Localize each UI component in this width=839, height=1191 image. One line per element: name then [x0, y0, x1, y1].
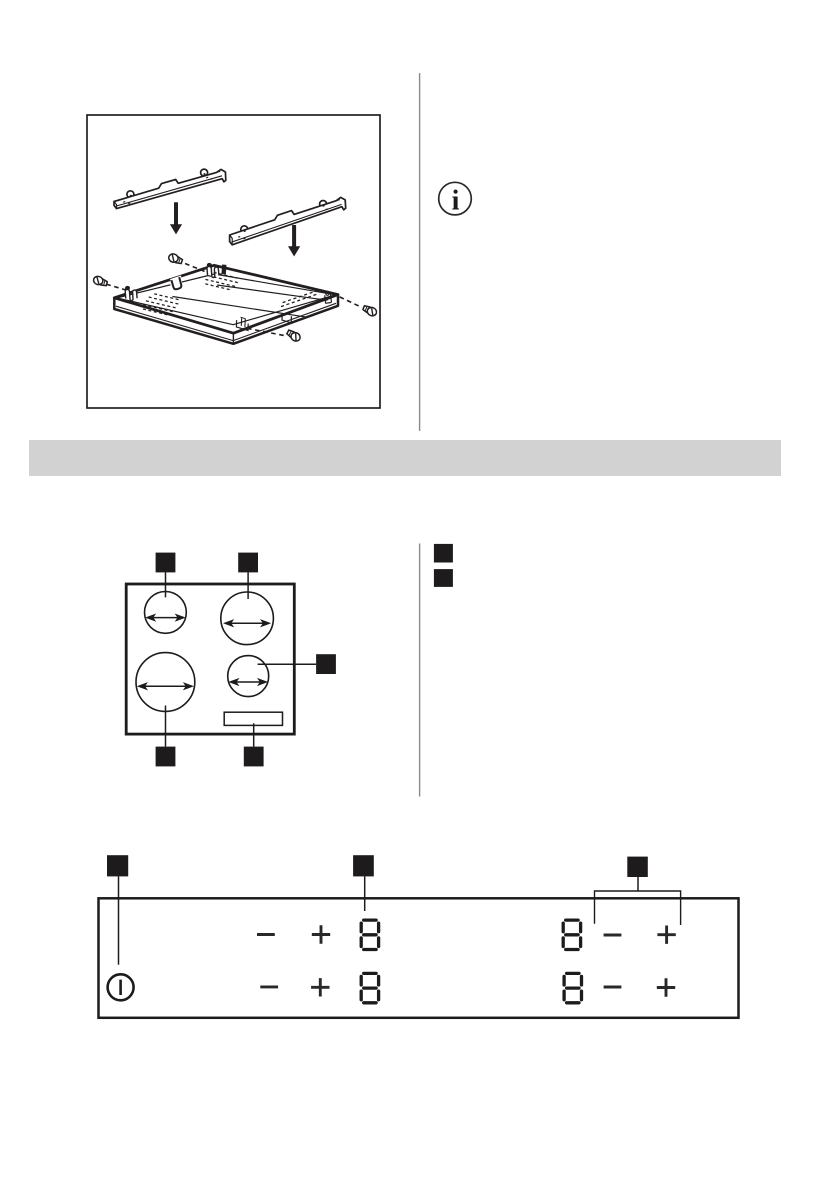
- svg-text:i: i: [452, 186, 460, 217]
